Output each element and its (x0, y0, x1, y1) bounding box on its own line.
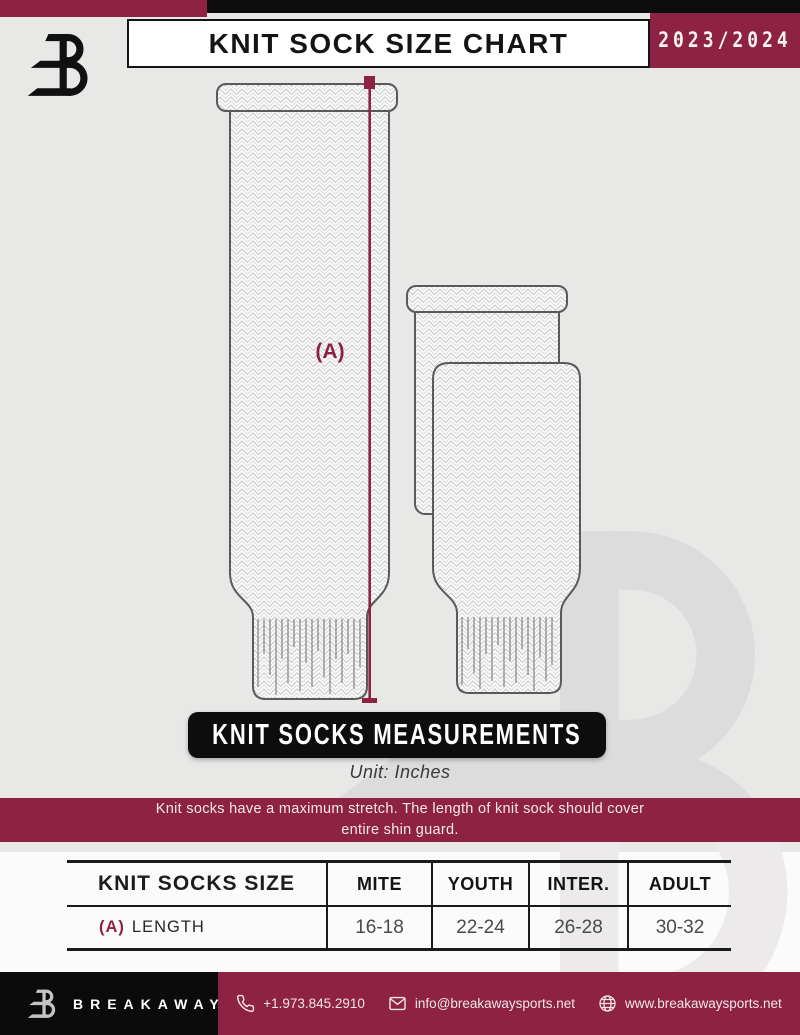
notice-line-1: Knit socks have a maximum stretch. The l… (156, 799, 644, 820)
length-youth: 22-24 (431, 907, 528, 948)
col-header-size: KNIT SOCKS SIZE (67, 863, 326, 905)
brand-name: BREAKAWAY (73, 996, 226, 1012)
phone-number: +1.973.845.2910 (263, 996, 365, 1011)
length-inter: 26-28 (528, 907, 627, 948)
table-section: KNIT SOCKS SIZE MITE YOUTH INTER. ADULT … (0, 842, 800, 972)
footer-contact-block: +1.973.845.2910 info@breakawaysports.net… (218, 972, 800, 1035)
notice-line-2: entire shin guard. (341, 820, 458, 841)
footer: BREAKAWAY +1.973.845.2910 info@breakaway… (0, 972, 800, 1035)
top-black-strip (207, 0, 800, 13)
unit-note: Unit: Inches (0, 762, 800, 783)
row-label-prefix: (A) (99, 918, 125, 937)
footer-brand-block: BREAKAWAY (0, 972, 218, 1035)
sock-size-diagram: (A) (0, 70, 800, 715)
measurements-banner-label: KNIT SOCKS MEASUREMENTS (212, 718, 581, 751)
col-header-youth: YOUTH (431, 863, 528, 905)
season-label: 2023/2024 (658, 28, 792, 53)
col-header-inter: INTER. (528, 863, 627, 905)
size-table-header-row: KNIT SOCKS SIZE MITE YOUTH INTER. ADULT (67, 863, 731, 907)
main-section: KNIT SOCK SIZE CHART 2023/2024 (0, 0, 800, 798)
measurements-banner: KNIT SOCKS MEASUREMENTS (188, 712, 606, 758)
globe-icon (598, 994, 617, 1013)
page-title: KNIT SOCK SIZE CHART (209, 28, 569, 60)
stretch-notice-banner: Knit socks have a maximum stretch. The l… (0, 798, 800, 842)
row-label-length: (A) LENGTH (67, 907, 326, 948)
knit-sock-size-chart-flyer: KNIT SOCK SIZE CHART 2023/2024 (0, 0, 800, 1035)
size-table: KNIT SOCKS SIZE MITE YOUTH INTER. ADULT … (67, 860, 731, 951)
length-mite: 16-18 (326, 907, 431, 948)
col-header-mite: MITE (326, 863, 431, 905)
measurement-label-a: (A) (315, 340, 344, 363)
website-url: www.breakawaysports.net (625, 996, 782, 1011)
title-box: KNIT SOCK SIZE CHART (127, 19, 650, 68)
website-contact: www.breakawaysports.net (598, 994, 782, 1013)
size-table-length-row: (A) LENGTH 16-18 22-24 26-28 30-32 (67, 907, 731, 948)
email-contact: info@breakawaysports.net (388, 994, 575, 1013)
breakaway-logo-icon (26, 24, 98, 107)
sock-illustration-intermediate (433, 363, 580, 693)
email-address: info@breakawaysports.net (415, 996, 575, 1011)
mail-icon (388, 994, 407, 1013)
season-badge: 2023/2024 (650, 13, 800, 68)
col-header-adult: ADULT (627, 863, 731, 905)
phone-icon (236, 994, 255, 1013)
breakaway-logo-icon (27, 985, 60, 1023)
length-adult: 30-32 (627, 907, 731, 948)
phone-contact: +1.973.845.2910 (236, 994, 365, 1013)
top-maroon-strip (0, 0, 207, 17)
